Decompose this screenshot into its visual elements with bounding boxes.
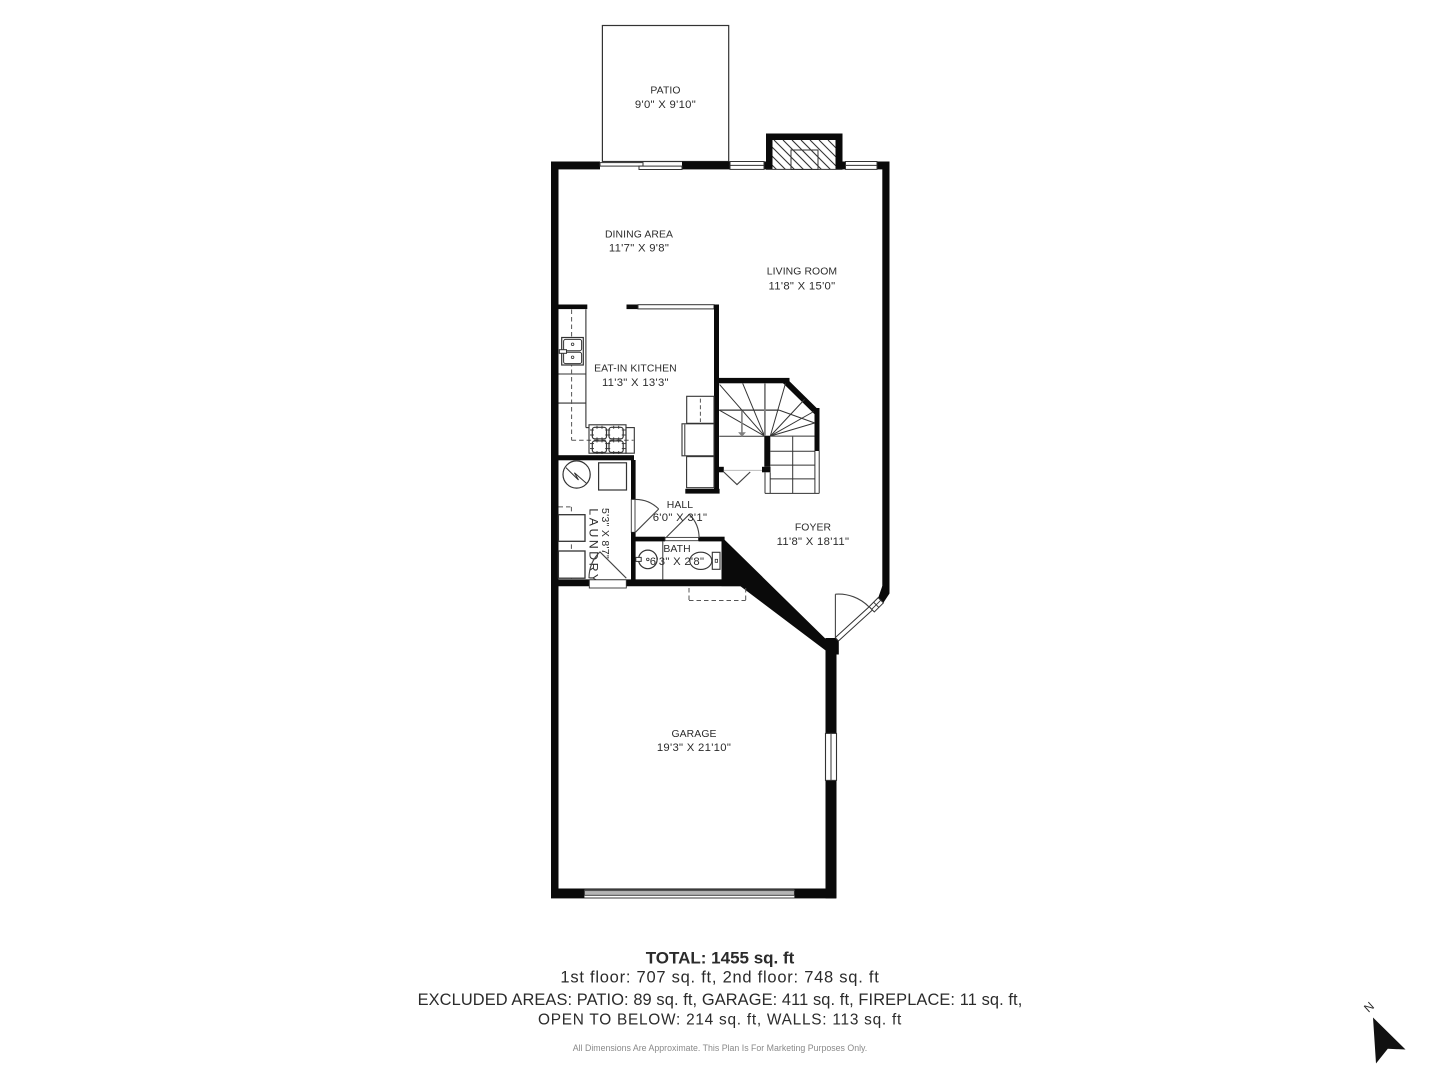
svg-text:TOTAL: 1455 sq. ft: TOTAL: 1455 sq. ft [646,948,795,967]
svg-text:9'0" X 9'10": 9'0" X 9'10" [635,99,696,111]
svg-text:6'0" X 3'1": 6'0" X 3'1" [653,512,708,524]
svg-text:11'7" X 9'8": 11'7" X 9'8" [609,243,669,255]
svg-text:EXCLUDED AREAS: PATIO: 89 sq.: EXCLUDED AREAS: PATIO: 89 sq. ft, GARAGE… [418,991,1023,1009]
svg-text:11'3" X 13'3": 11'3" X 13'3" [602,377,669,389]
svg-text:LAUNDRY: LAUNDRY [586,508,600,584]
svg-text:PATIO: PATIO [650,86,680,97]
svg-text:All Dimensions Are Approximate: All Dimensions Are Approximate. This Pla… [573,1043,868,1053]
svg-text:OPEN TO BELOW: 214 sq. ft, WAL: OPEN TO BELOW: 214 sq. ft, WALLS: 113 sq… [538,1012,902,1029]
svg-text:19'3" X 21'10": 19'3" X 21'10" [657,742,731,754]
svg-text:GARAGE: GARAGE [671,729,716,740]
svg-text:FOYER: FOYER [795,523,832,534]
svg-text:11'8" X 18'11": 11'8" X 18'11" [777,536,850,548]
svg-text:EAT-IN KITCHEN: EAT-IN KITCHEN [594,364,677,375]
svg-text:6'3" X 2'8": 6'3" X 2'8" [650,556,705,568]
svg-text:HALL: HALL [667,500,694,511]
svg-text:11'8" X 15'0": 11'8" X 15'0" [769,281,836,293]
svg-text:LIVING ROOM: LIVING ROOM [767,267,837,278]
svg-text:DINING AREA: DINING AREA [605,230,673,241]
svg-text:BATH: BATH [663,544,690,555]
svg-text:1st floor: 707 sq. ft, 2nd flo: 1st floor: 707 sq. ft, 2nd floor: 748 sq… [560,969,879,987]
svg-text:5'3" X 8'7": 5'3" X 8'7" [599,508,611,559]
